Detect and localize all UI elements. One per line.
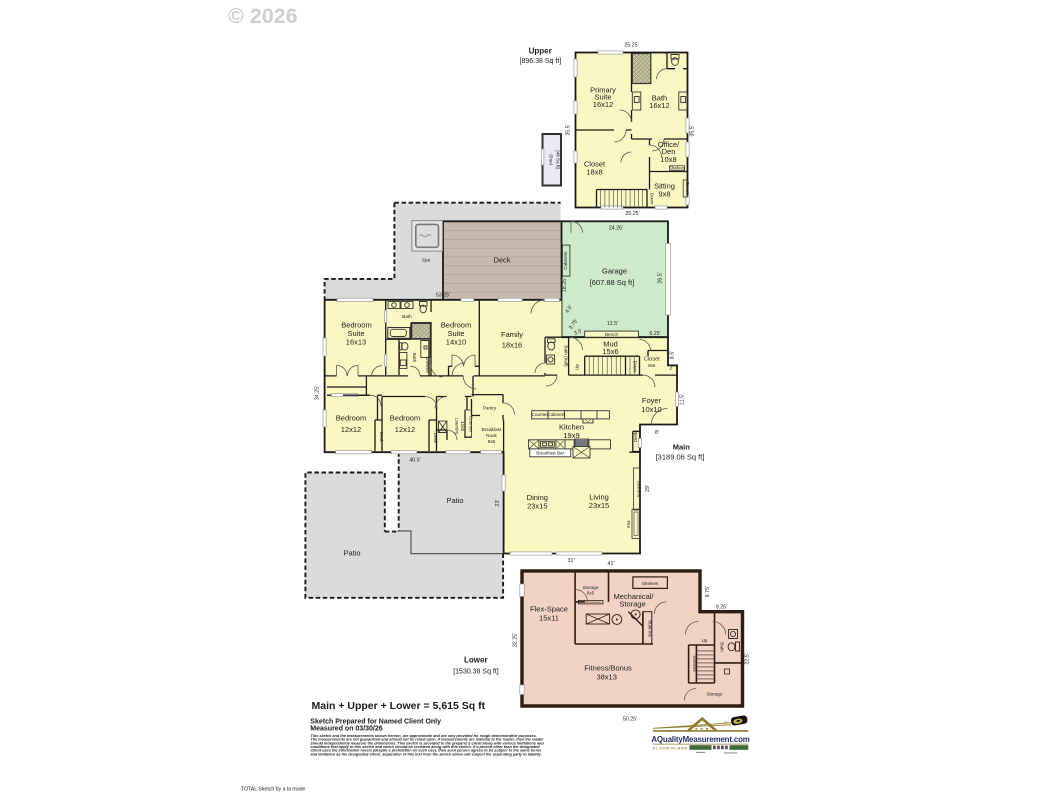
svg-text:Built-ins: Built-ins — [637, 481, 642, 498]
svg-text:8x6: 8x6 — [648, 363, 656, 368]
svg-text:2': 2' — [670, 366, 674, 372]
svg-text:Cabinets: Cabinets — [563, 251, 568, 270]
svg-text:Cabinets: Cabinets — [547, 412, 566, 417]
svg-text:8x6: 8x6 — [488, 439, 496, 444]
svg-text:16x12: 16x12 — [649, 101, 669, 110]
svg-text:19x9: 19x9 — [563, 431, 579, 440]
svg-text:10x10: 10x10 — [641, 405, 661, 414]
svg-text:Bench: Bench — [605, 332, 618, 337]
svg-text:16x13: 16x13 — [346, 337, 366, 346]
svg-text:Bench: Bench — [685, 182, 690, 195]
svg-text:26.5': 26.5' — [658, 272, 664, 283]
svg-text:Upper: Upper — [529, 47, 552, 56]
svg-text:Sketch Prepared for Named Clie: Sketch Prepared for Named Client Only — [310, 718, 441, 725]
svg-text:Storage: Storage — [619, 599, 645, 608]
svg-text:22.5': 22.5' — [744, 653, 750, 664]
svg-text:Spa: Spa — [422, 258, 431, 263]
svg-text:14x10: 14x10 — [446, 337, 466, 346]
svg-text:18x8: 18x8 — [586, 167, 602, 176]
svg-text:Up: Up — [575, 364, 580, 370]
svg-text:TOTAL Sketch by a la mode: TOTAL Sketch by a la mode — [241, 787, 306, 792]
svg-text:[1530.38 Sq ft]: [1530.38 Sq ft] — [453, 669, 499, 676]
svg-text:31': 31' — [568, 558, 575, 564]
svg-text:9.75': 9.75' — [705, 586, 711, 597]
svg-text:[896.38 Sq ft]: [896.38 Sq ft] — [520, 58, 562, 65]
svg-text:12x12: 12x12 — [341, 425, 361, 434]
svg-text:32.25': 32.25' — [513, 633, 519, 647]
svg-text:Storage: Storage — [706, 692, 723, 697]
svg-text:15x11: 15x11 — [539, 614, 559, 623]
svg-text:Patio: Patio — [343, 549, 360, 558]
svg-text:Shelves: Shelves — [425, 356, 430, 373]
svg-text:AQualityMeasurement.com: AQualityMeasurement.com — [651, 735, 749, 744]
svg-text:Shelves: Shelves — [692, 655, 697, 672]
svg-text:12.5': 12.5' — [607, 321, 618, 327]
svg-text:53.25': 53.25' — [436, 293, 450, 299]
svg-text:Shed: Shed — [549, 154, 554, 165]
svg-text:Counter: Counter — [532, 412, 549, 417]
svg-text:15x6: 15x6 — [602, 347, 618, 356]
svg-text:Main: Main — [673, 443, 691, 452]
svg-text:Nook: Nook — [486, 433, 497, 438]
svg-text:Bath: Bath — [720, 642, 725, 652]
svg-text:Bedroom: Bedroom — [336, 414, 366, 423]
svg-text:12x8: 12x8 — [460, 421, 465, 431]
svg-text:[3189.06 Sq ft]: [3189.06 Sq ft] — [656, 452, 705, 461]
svg-text:Counter: Counter — [469, 416, 474, 433]
svg-text:9.25': 9.25' — [716, 604, 727, 610]
svg-text:Flex-Space: Flex-Space — [530, 605, 568, 614]
svg-text:Down: Down — [633, 361, 638, 373]
svg-text:50.25': 50.25' — [623, 717, 637, 723]
svg-text:34.25': 34.25' — [315, 386, 321, 400]
svg-text:[607.88 Sq ft]: [607.88 Sq ft] — [590, 278, 635, 287]
svg-text:Bedroom: Bedroom — [390, 414, 420, 423]
svg-text:16x12: 16x12 — [593, 100, 613, 109]
svg-text:25.25': 25.25' — [624, 43, 638, 49]
svg-text:11.5': 11.5' — [679, 394, 685, 405]
svg-text:Main + Upper + Lower = 5,615 S: Main + Upper + Lower = 5,615 Sq ft — [312, 700, 486, 712]
svg-text:[48 Sq ft]: [48 Sq ft] — [556, 150, 561, 168]
svg-text:Deck: Deck — [493, 256, 510, 265]
svg-text:Lower: Lower — [464, 656, 488, 665]
svg-text:Built-Ins: Built-Ins — [648, 620, 653, 637]
svg-text:41': 41' — [608, 561, 615, 567]
svg-text:9x8: 9x8 — [658, 190, 670, 199]
svg-text:FLOOR PLANS &: FLOOR PLANS & — [653, 745, 693, 750]
svg-text:Bath: Bath — [402, 314, 412, 319]
svg-text:6.25': 6.25' — [649, 331, 660, 337]
svg-text:Shelves: Shelves — [642, 581, 659, 586]
svg-text:Desk: Desk — [379, 432, 384, 443]
svg-text:10x8: 10x8 — [660, 155, 676, 164]
svg-text:Bath: Bath — [412, 353, 417, 363]
svg-text:25.25': 25.25' — [625, 211, 639, 217]
svg-text:© 2026: © 2026 — [228, 4, 298, 28]
svg-text:Up: Up — [702, 638, 708, 643]
svg-text:18.25': 18.25' — [562, 278, 568, 292]
svg-text:6x5: 6x5 — [587, 591, 595, 596]
svg-text:Breakfast Bar: Breakfast Bar — [536, 451, 564, 456]
svg-text:Shelves: Shelves — [669, 165, 686, 170]
svg-text:Bath (half): Bath (half) — [564, 345, 569, 367]
svg-text:and limitation as the designat: and limitation as the designated Client.… — [311, 752, 542, 756]
svg-text:12x12: 12x12 — [395, 425, 415, 434]
svg-text:Foyer: Foyer — [642, 396, 662, 405]
svg-text:40.5': 40.5' — [409, 458, 420, 464]
svg-text:Fire: Fire — [626, 521, 631, 529]
svg-text:Desk: Desk — [433, 433, 438, 444]
svg-text:Laundry: Laundry — [455, 418, 460, 435]
svg-text:Down: Down — [650, 193, 655, 205]
svg-text:Measured on 03/30/26: Measured on 03/30/26 — [310, 726, 382, 733]
svg-text:Pantry: Pantry — [483, 406, 497, 411]
svg-text:Patio: Patio — [446, 496, 463, 505]
svg-text:18x16: 18x16 — [502, 341, 522, 350]
svg-text:Garage: Garage — [602, 267, 627, 276]
svg-text:Desk: Desk — [633, 431, 638, 442]
svg-text:35.5': 35.5' — [690, 125, 696, 136]
svg-text:Fitness/Bonus: Fitness/Bonus — [584, 664, 632, 673]
svg-text:Family: Family — [501, 330, 523, 339]
svg-text:8.5': 8.5' — [670, 351, 676, 359]
svg-text:Closet: Closet — [644, 357, 660, 363]
svg-text:35.5': 35.5' — [566, 124, 572, 135]
svg-text:8': 8' — [655, 430, 659, 436]
svg-text:23x15: 23x15 — [527, 502, 547, 511]
svg-text:Breakfast: Breakfast — [482, 427, 502, 432]
svg-text:Storage: Storage — [582, 585, 599, 590]
svg-text:38x13: 38x13 — [596, 673, 616, 682]
svg-text:23': 23' — [495, 500, 501, 507]
svg-text:29': 29' — [645, 485, 651, 492]
svg-text:24.25': 24.25' — [609, 226, 623, 232]
svg-text:23x15: 23x15 — [589, 501, 609, 510]
